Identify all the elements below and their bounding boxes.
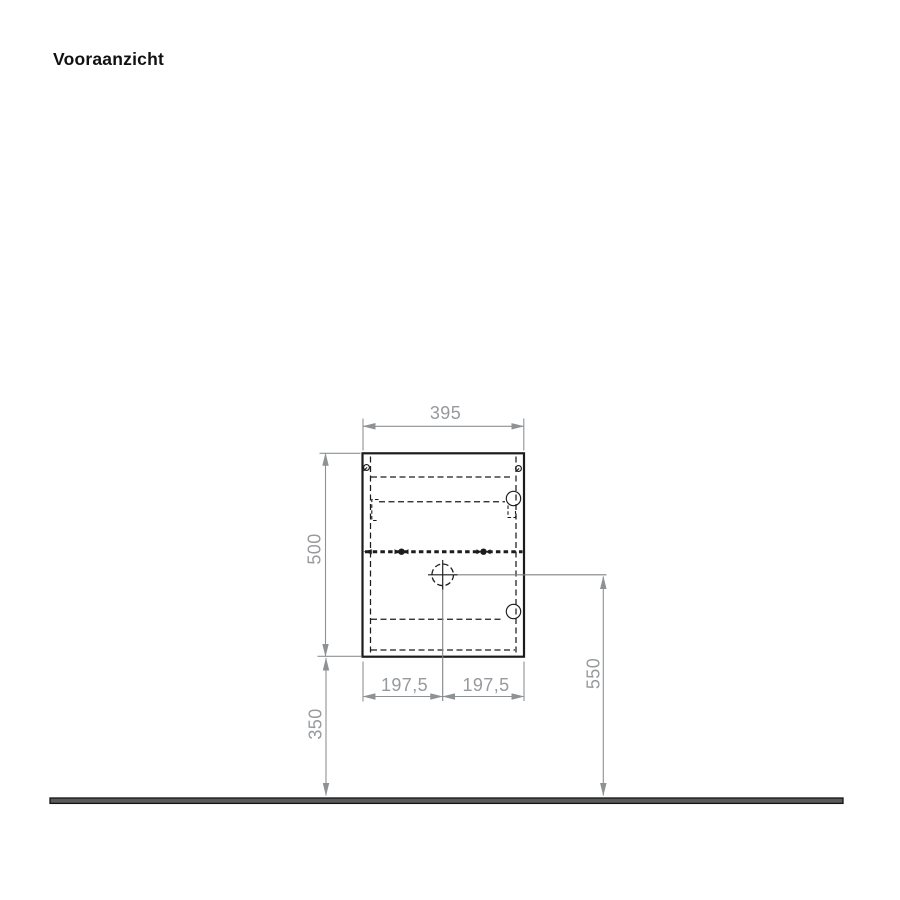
- dim-350-label: 350: [306, 708, 326, 739]
- dim-395-label: 395: [430, 403, 461, 423]
- dimension-top-width: 395: [363, 403, 524, 451]
- hinge-top-circle: [506, 491, 520, 505]
- hinge-top-plate-dashed: [508, 506, 516, 518]
- mid-rail-arrow: [364, 549, 372, 554]
- drain-hole: [428, 560, 458, 590]
- screw-top-left: [364, 465, 370, 471]
- slide-bracket-left-dashed: [372, 500, 379, 521]
- cam-fitting-left: [395, 549, 409, 555]
- floor-line: [50, 798, 843, 803]
- dim-1975-left-label: 197,5: [381, 675, 428, 695]
- technical-drawing: 395 500 350 550 197,5 197,5: [0, 0, 900, 900]
- cam-fitting-right: [477, 549, 491, 555]
- dim-550-label: 550: [584, 658, 604, 689]
- dimension-floor-gap: 350: [306, 658, 327, 796]
- dim-500-label: 500: [305, 533, 325, 564]
- dimension-drain-height: 550: [584, 577, 604, 796]
- page: { "title": "Vooraanzicht", "dimensions":…: [0, 0, 900, 900]
- dim-1975-right-label: 197,5: [462, 675, 509, 695]
- hinge-bottom-circle: [506, 604, 520, 618]
- dimension-cabinet-height: 500: [305, 453, 362, 656]
- dimension-bottom-halves: 197,5 197,5: [363, 662, 524, 702]
